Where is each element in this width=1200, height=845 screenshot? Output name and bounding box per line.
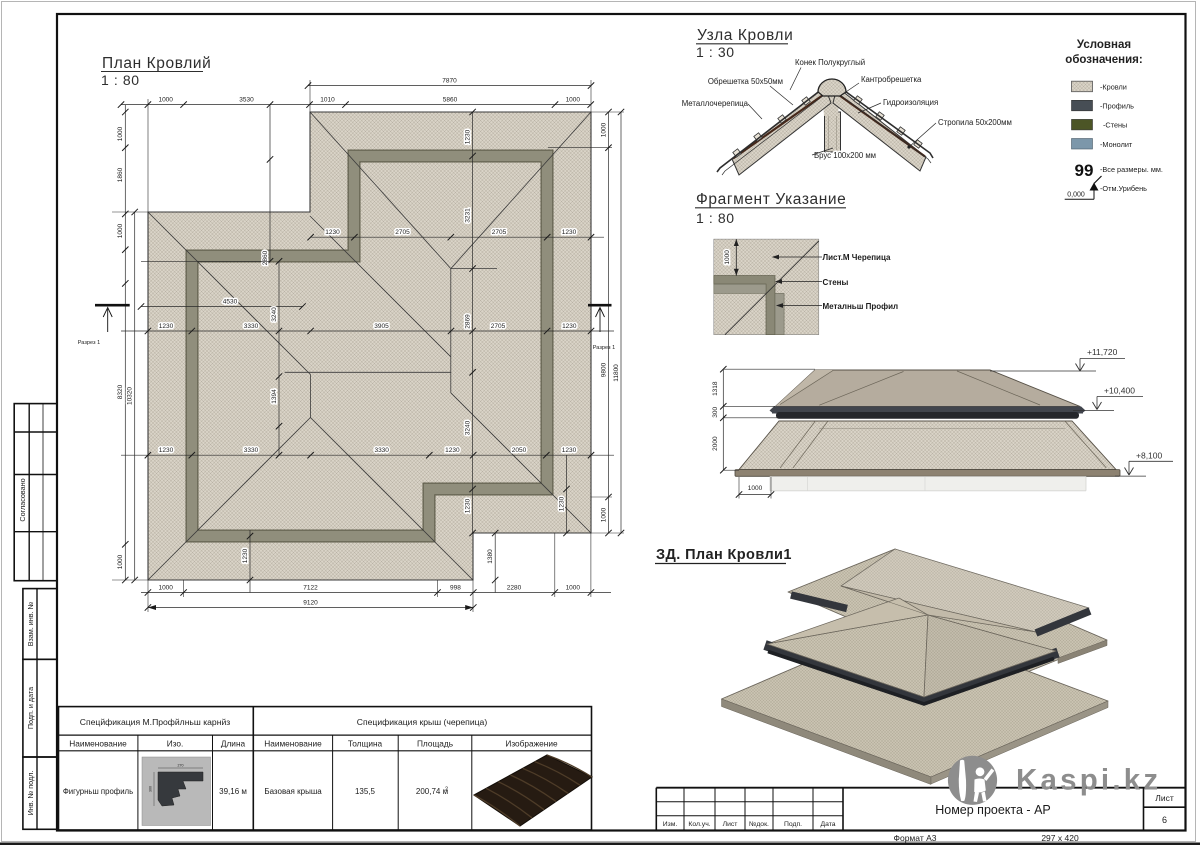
svg-text:99: 99: [1075, 161, 1094, 180]
svg-text:1 : 80: 1 : 80: [101, 72, 140, 88]
svg-text:1 : 80: 1 : 80: [696, 210, 735, 226]
svg-text:Фигурньш профиль: Фигурньш профиль: [63, 787, 133, 796]
svg-text:1230: 1230: [562, 323, 577, 330]
svg-text:1000: 1000: [117, 126, 124, 141]
svg-text:3330: 3330: [244, 447, 259, 454]
svg-text:7870: 7870: [442, 77, 457, 84]
svg-text:-Профиль: -Профиль: [1100, 102, 1134, 111]
svg-text:11800: 11800: [613, 364, 620, 382]
svg-text:5860: 5860: [443, 96, 458, 103]
svg-text:Фрагмент Указание: Фрагмент Указание: [696, 191, 846, 208]
svg-text:Изм.: Изм.: [663, 821, 678, 828]
svg-text:7122: 7122: [303, 584, 318, 591]
svg-text:2050: 2050: [512, 447, 527, 454]
svg-text:Узла Кровли: Узла Кровли: [697, 27, 793, 44]
svg-text:обозначения:: обозначения:: [1065, 54, 1142, 66]
svg-text:200,74 м: 200,74 м: [416, 787, 448, 796]
svg-text:1380: 1380: [487, 549, 494, 564]
svg-text:Металньш Профил: Металньш Профил: [823, 302, 899, 311]
svg-text:ЗД. План Кровли1: ЗД. План Кровли1: [656, 547, 792, 563]
svg-text:Взам. инв. №: Взам. инв. №: [26, 601, 35, 646]
svg-text:1230: 1230: [159, 447, 174, 454]
svg-text:Наименование: Наименование: [264, 739, 322, 749]
svg-text:1000: 1000: [748, 485, 763, 492]
svg-text:300: 300: [149, 786, 153, 792]
svg-text:3330: 3330: [374, 447, 389, 454]
svg-text:Наименование: Наименование: [69, 739, 127, 749]
svg-text:Дата: Дата: [820, 821, 835, 828]
svg-text:4530: 4530: [223, 298, 238, 305]
svg-text:Формат А3: Формат А3: [894, 833, 937, 843]
svg-text:8320: 8320: [117, 384, 124, 399]
svg-text:1000: 1000: [158, 584, 173, 591]
svg-text:+8,100: +8,100: [1136, 451, 1163, 461]
svg-text:-Монолит: -Монолит: [1100, 140, 1133, 149]
svg-text:Номер проекта - АР: Номер проекта - АР: [935, 803, 1051, 817]
svg-text:Изо.: Изо.: [167, 739, 184, 749]
svg-text:Длина: Длина: [221, 739, 246, 749]
svg-text:1010: 1010: [320, 96, 335, 103]
svg-text:-Все размеры. мм.: -Все размеры. мм.: [1100, 165, 1163, 174]
svg-text:1230: 1230: [159, 323, 174, 330]
svg-text:1000: 1000: [724, 250, 731, 265]
svg-text:1000: 1000: [158, 96, 173, 103]
svg-text:3905: 3905: [374, 323, 389, 330]
svg-text:1230: 1230: [558, 496, 565, 511]
svg-text:1 : 30: 1 : 30: [696, 44, 735, 60]
svg-text:9120: 9120: [303, 599, 318, 606]
svg-text:Спецйфикация М.Профйлньш карн: Спецйфикация М.Профйлньш карнйз: [80, 717, 230, 727]
svg-text:Кантробрешетка: Кантробрешетка: [861, 75, 922, 84]
svg-text:1230: 1230: [562, 447, 577, 454]
svg-text:1318: 1318: [712, 381, 719, 396]
svg-text:2860: 2860: [262, 250, 269, 265]
svg-text:2: 2: [445, 787, 448, 793]
svg-text:Kaspi.kz: Kaspi.kz: [1016, 764, 1161, 797]
svg-text:297 х 420: 297 х 420: [1041, 833, 1079, 843]
svg-text:Стропила 50х200мм: Стропила 50х200мм: [938, 118, 1012, 127]
svg-text:2280: 2280: [507, 584, 522, 591]
svg-text:-Кровли: -Кровли: [1100, 83, 1127, 92]
svg-text:+11,720: +11,720: [1087, 347, 1118, 357]
svg-text:Металлочерепица: Металлочерепица: [682, 99, 749, 108]
svg-text:0,000: 0,000: [1067, 192, 1085, 199]
svg-text:Кол.уч.: Кол.уч.: [688, 821, 710, 828]
svg-text:1000: 1000: [566, 584, 581, 591]
svg-text:3240: 3240: [464, 420, 471, 435]
svg-text:Лист.М Черепица: Лист.М Черепица: [823, 253, 891, 262]
svg-text:+10,400: +10,400: [1104, 386, 1135, 396]
svg-text:1000: 1000: [117, 223, 124, 238]
svg-text:6: 6: [1162, 815, 1167, 825]
svg-text:№док.: №док.: [749, 821, 769, 828]
svg-text:3530: 3530: [239, 96, 254, 103]
svg-text:План Кровлий: План Кровлий: [102, 55, 211, 72]
svg-text:1230: 1230: [242, 548, 249, 563]
svg-text:1394: 1394: [271, 389, 278, 404]
svg-text:1000: 1000: [600, 122, 607, 137]
svg-text:10320: 10320: [127, 387, 134, 405]
svg-text:Инв. № подл.: Инв. № подл.: [26, 771, 35, 816]
svg-text:Разрез 1: Разрез 1: [593, 345, 616, 351]
svg-text:1000: 1000: [600, 507, 607, 522]
svg-text:2705: 2705: [395, 229, 410, 236]
svg-text:Подп.: Подп.: [784, 821, 802, 828]
svg-text:1000: 1000: [117, 554, 124, 569]
svg-text:2705: 2705: [492, 229, 507, 236]
svg-text:Обрешетка 50х50мм: Обрешетка 50х50мм: [708, 77, 783, 86]
svg-text:2869: 2869: [464, 314, 471, 329]
svg-text:-Стены: -Стены: [1103, 121, 1127, 130]
svg-text:300: 300: [712, 406, 719, 417]
svg-text:Условная: Условная: [1077, 39, 1131, 51]
svg-text:Брус 100х200 мм: Брус 100х200 мм: [814, 151, 876, 160]
svg-text:1000: 1000: [566, 96, 581, 103]
svg-text:Спецификация крыш (черепица): Спецификация крыш (черепица): [357, 717, 488, 727]
svg-text:Базовая крыша: Базовая крыша: [264, 787, 322, 796]
svg-text:Площадь: Площадь: [417, 739, 453, 749]
svg-text:Лист: Лист: [723, 821, 738, 828]
svg-text:39,16 м: 39,16 м: [219, 787, 247, 796]
svg-text:3240: 3240: [271, 307, 278, 322]
svg-text:1230: 1230: [464, 129, 471, 144]
svg-text:1230: 1230: [562, 229, 577, 236]
svg-text:1230: 1230: [325, 229, 340, 236]
svg-text:Конек Полукруглый: Конек Полукруглый: [795, 58, 865, 67]
svg-text:-Отм.Урибень: -Отм.Урибень: [1100, 184, 1147, 193]
svg-text:3330: 3330: [244, 323, 259, 330]
svg-text:1860: 1860: [117, 167, 124, 182]
svg-text:135,5: 135,5: [355, 787, 376, 796]
svg-text:Толщина: Толщина: [348, 739, 383, 749]
svg-text:1230: 1230: [445, 447, 460, 454]
svg-text:Разрез 1: Разрез 1: [78, 340, 101, 346]
svg-text:Гидроизоляция: Гидроизоляция: [883, 98, 938, 107]
svg-text:Согласовано: Согласовано: [18, 478, 27, 521]
svg-text:998: 998: [450, 584, 461, 591]
svg-text:1230: 1230: [464, 498, 471, 513]
svg-text:270: 270: [178, 764, 184, 768]
svg-text:Изображение: Изображение: [505, 739, 558, 749]
svg-text:3231: 3231: [464, 208, 471, 223]
svg-text:9800: 9800: [600, 362, 607, 377]
svg-text:2000: 2000: [712, 436, 719, 451]
svg-text:2705: 2705: [491, 323, 506, 330]
svg-text:Стены: Стены: [823, 278, 849, 287]
svg-text:Подп. и дата: Подп. и дата: [26, 687, 35, 729]
